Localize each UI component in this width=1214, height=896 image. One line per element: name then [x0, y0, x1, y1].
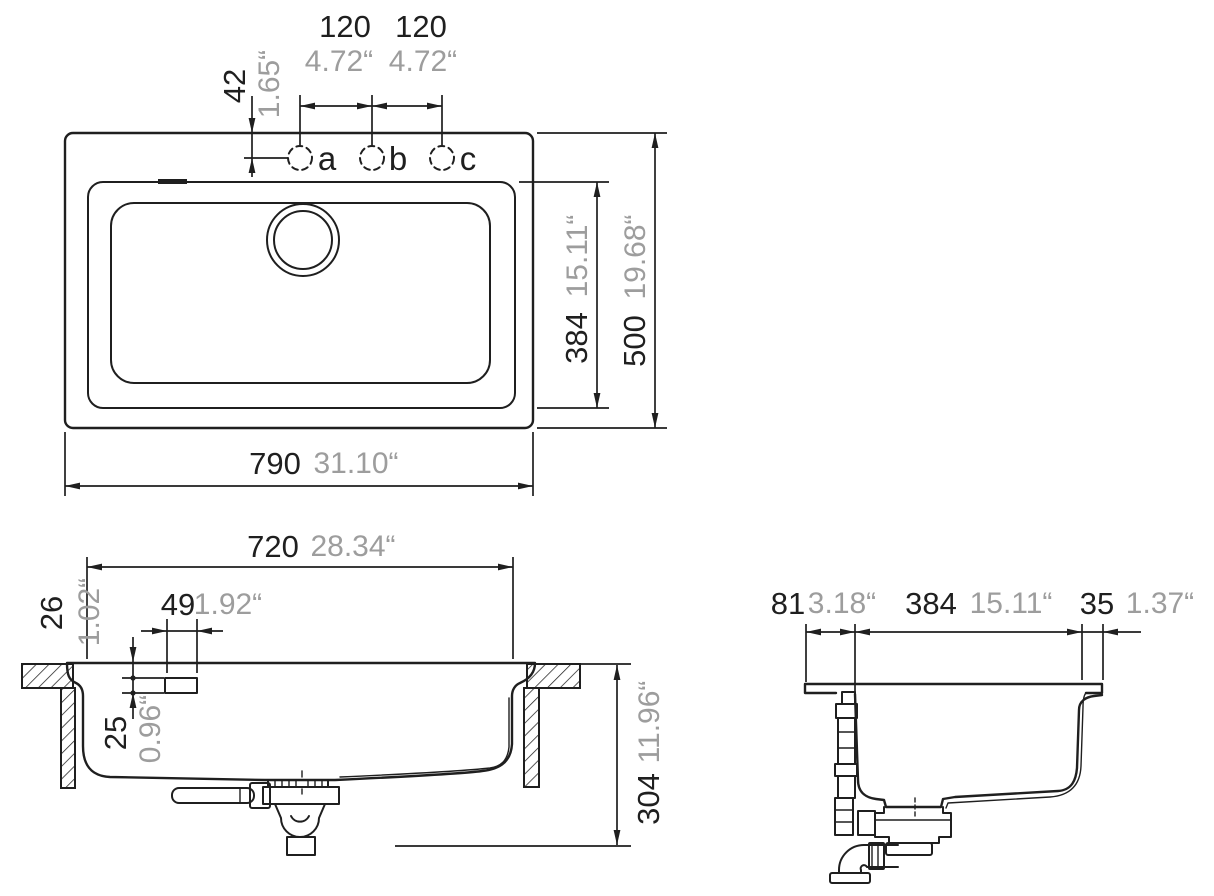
- dim-bowl-width-mm: 384: [905, 586, 957, 621]
- dim-rim-to-overflow-inch: 1.02“: [73, 578, 106, 646]
- technical-drawing-canvas: a b c 120 120 4.72“ 4.72“ 42 1.65“: [0, 0, 1214, 896]
- cabinet-right-panel: [524, 688, 539, 787]
- dim-hole-offset-mm: 42: [217, 69, 252, 103]
- dim-cutout-width-inch: 28.34“: [310, 530, 395, 563]
- dim-back-offset-mm: 35: [1080, 586, 1114, 621]
- dim-front-offset-inch: 3.18“: [808, 587, 876, 620]
- dim-back-offset-inch: 1.37“: [1126, 587, 1194, 620]
- dim-cutout-width-mm: 720: [247, 529, 299, 564]
- hole-label-a: a: [318, 140, 337, 177]
- dim-overall-width-inch: 31.10“: [313, 447, 398, 480]
- sink-dimension-diagram: a b c 120 120 4.72“ 4.72“ 42 1.65“: [0, 0, 1214, 896]
- background: [0, 0, 1214, 896]
- dim-hole-offset-inch: 1.65“: [253, 50, 286, 118]
- dim-overall-depth-mm: 500: [617, 315, 652, 367]
- dim-spacing-bc-inch: 4.72“: [389, 45, 457, 78]
- dim-rim-to-overflow-mm: 26: [34, 596, 69, 630]
- dim-overflow-width-mm: 49: [161, 587, 195, 622]
- dim-overall-width-mm: 790: [249, 446, 301, 481]
- overflow-slot-mark: [158, 179, 187, 184]
- dim-front-offset-mm: 81: [771, 586, 805, 621]
- dim-overflow-height-inch: 0.96“: [134, 695, 167, 763]
- dim-bowl-depth-inch: 15.11“: [561, 215, 594, 298]
- dim-spacing-ab-mm: 120: [319, 9, 371, 44]
- hole-label-c: c: [460, 140, 477, 177]
- dim-bowl-width-inch: 15.11“: [970, 587, 1053, 620]
- dim-installation-depth-inch: 11.96“: [633, 681, 666, 764]
- dim-overflow-width-inch: 1.92“: [194, 588, 262, 621]
- dim-spacing-ab-inch: 4.72“: [305, 45, 373, 78]
- hole-label-b: b: [389, 140, 407, 177]
- dim-bowl-depth-mm: 384: [559, 312, 594, 364]
- dim-installation-depth-mm: 304: [631, 773, 666, 825]
- dim-spacing-bc-mm: 120: [395, 9, 447, 44]
- cabinet-left-panel: [61, 688, 75, 788]
- counter-left-block: [22, 664, 73, 688]
- dim-overflow-height-mm: 25: [98, 716, 133, 750]
- dim-overall-depth-inch: 19.68“: [619, 214, 652, 299]
